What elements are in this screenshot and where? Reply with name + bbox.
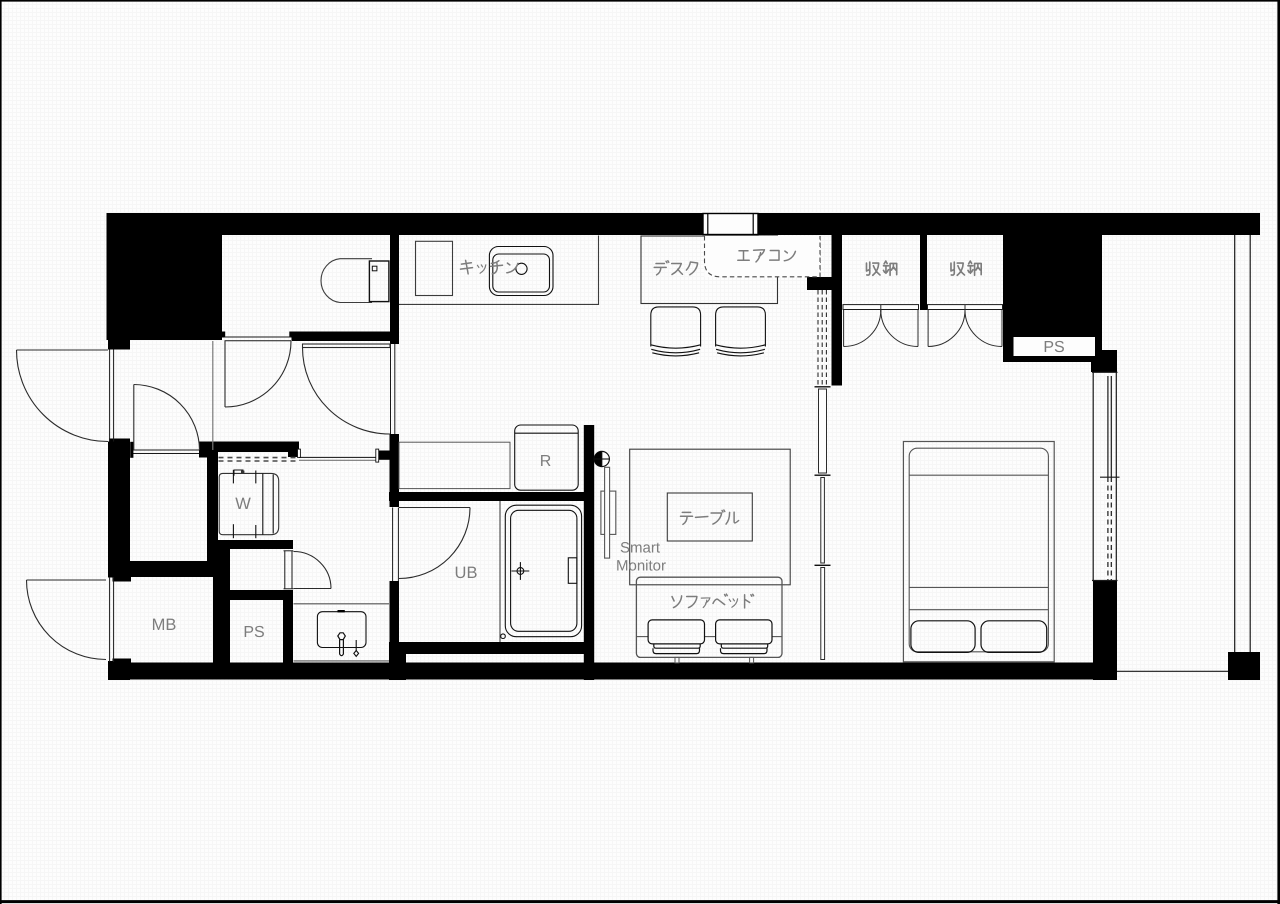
svg-text:R: R [540, 453, 552, 470]
svg-text:UB: UB [455, 564, 478, 582]
svg-text:PS: PS [243, 624, 264, 641]
svg-text:Smart: Smart [620, 540, 661, 557]
svg-text:Monitor: Monitor [616, 558, 666, 575]
svg-text:W: W [235, 495, 251, 513]
svg-text:PS: PS [1043, 339, 1064, 356]
svg-text:MB: MB [152, 616, 177, 634]
